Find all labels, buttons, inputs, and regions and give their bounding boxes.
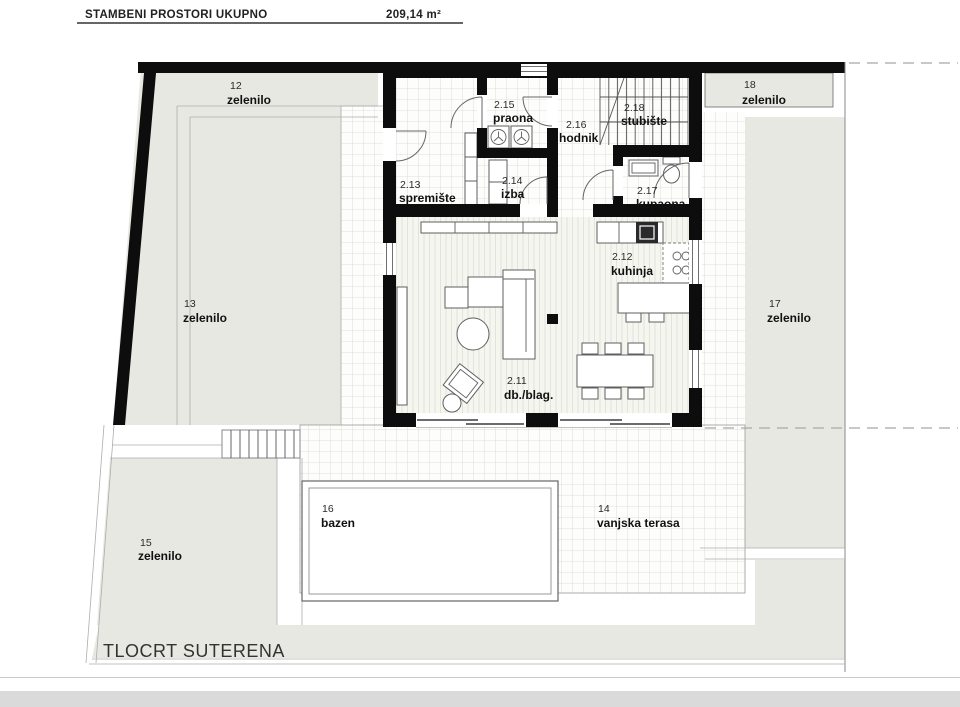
room-name-dnevni: db./blag. — [504, 388, 553, 402]
greenery-bottom-right-area — [755, 560, 845, 625]
dining-chair — [628, 343, 644, 354]
greenery-13-area — [113, 68, 378, 425]
west-walkway-tiles — [341, 106, 383, 425]
room-number-stubiste: 2.18 — [624, 102, 645, 114]
area-name-13: zelenilo — [183, 311, 227, 325]
area-number-16: 16 — [322, 503, 334, 515]
room-number-dnevni: 2.11 — [507, 375, 527, 387]
storage-shelf — [465, 133, 477, 205]
area-number-15: 15 — [140, 537, 152, 549]
stool — [626, 313, 641, 322]
room-name-izba: izba — [501, 187, 525, 201]
dining-chair — [582, 388, 598, 399]
coffee-table — [457, 318, 489, 350]
area-number-13: 13 — [184, 298, 196, 310]
bathroom-sink — [629, 160, 658, 176]
room-number-izba: 2.14 — [502, 175, 523, 187]
area-name-12: zelenilo — [227, 93, 271, 107]
dining-chair — [605, 388, 621, 399]
floor-plan-canvas: STAMBENI PROSTORI UKUPNO 209,14 m² — [0, 0, 960, 707]
kitchen-counter — [597, 222, 663, 243]
area-name-18: zelenilo — [742, 93, 786, 107]
room-name-hodnik: hodnik — [559, 131, 599, 145]
pool-walkway-lines — [277, 458, 302, 625]
stool — [649, 313, 664, 322]
header: STAMBENI PROSTORI UKUPNO 209,14 m² — [77, 9, 463, 23]
greenery-17-area — [745, 117, 845, 548]
room-name-stubiste: stubište — [621, 114, 667, 128]
fireplace — [547, 314, 558, 324]
room-name-spremiste: spremište — [399, 191, 456, 205]
side-stool — [443, 394, 461, 412]
room-name-praona: praona — [493, 111, 533, 125]
area-number-17: 17 — [769, 298, 781, 310]
page-bottom-strip — [0, 691, 960, 707]
stove-icon — [636, 222, 658, 243]
washing-machine-icon — [511, 126, 532, 148]
area-number-14: 14 — [598, 503, 610, 515]
hallway-passage-floor — [558, 204, 593, 217]
area-name-14: vanjska terasa — [597, 516, 680, 530]
kitchen-island — [618, 283, 690, 313]
room-number-spremiste: 2.13 — [400, 179, 421, 191]
wall-interior — [547, 75, 558, 204]
room-number-kuhinja: 2.12 — [612, 251, 633, 263]
exterior-stairs — [222, 430, 300, 458]
room-number-praona: 2.15 — [494, 99, 515, 111]
area-name-16: bazen — [321, 516, 355, 530]
wall-cabinet — [397, 287, 407, 405]
total-area-value: 209,14 m² — [386, 9, 441, 21]
dining-table — [577, 355, 653, 387]
plan-title: TLOCRT SUTERENA — [103, 641, 285, 661]
dining-chair — [582, 343, 598, 354]
dining-set — [577, 343, 653, 399]
room-number-hodnik: 2.16 — [566, 119, 587, 131]
pool-outer — [302, 481, 558, 601]
area-name-15: zelenilo — [138, 549, 182, 563]
side-table — [445, 287, 468, 308]
room-number-kupaona: 2.17 — [637, 185, 658, 197]
room-name-kupaona: kupaona — [636, 197, 686, 211]
dining-chair — [628, 388, 644, 399]
pool — [302, 481, 558, 601]
header-title: STAMBENI PROSTORI UKUPNO — [85, 9, 267, 21]
wall-south-pier — [526, 413, 558, 427]
greenery-15-area — [97, 458, 277, 625]
cooktop-counter — [663, 243, 690, 283]
wall-interior — [477, 148, 558, 158]
dining-chair — [605, 343, 621, 354]
wall-south-pier — [672, 413, 702, 427]
wall-interior — [613, 145, 702, 157]
wall-south-pier — [383, 413, 416, 427]
room-name-kuhinja: kuhinja — [611, 264, 653, 278]
floor-plan-page: STAMBENI PROSTORI UKUPNO 209,14 m² — [0, 0, 960, 707]
area-name-17: zelenilo — [767, 311, 811, 325]
washing-machine-icon — [488, 126, 509, 148]
area-number-12: 12 — [230, 80, 242, 92]
area-number-18: 18 — [744, 79, 756, 91]
toilet — [663, 157, 680, 183]
